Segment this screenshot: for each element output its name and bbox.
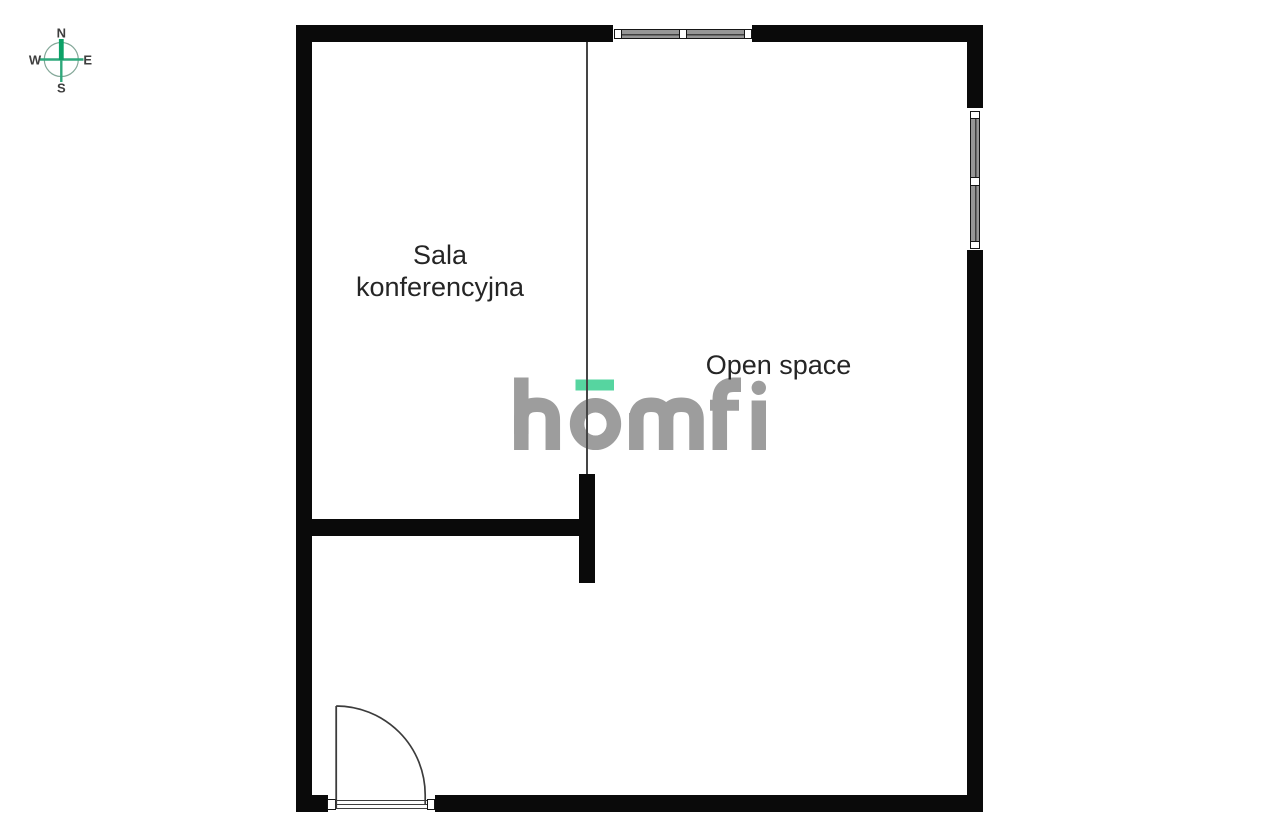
svg-text:E: E [83,53,92,68]
svg-text:S: S [57,81,66,96]
svg-text:N: N [57,26,66,41]
svg-text:W: W [29,53,42,68]
